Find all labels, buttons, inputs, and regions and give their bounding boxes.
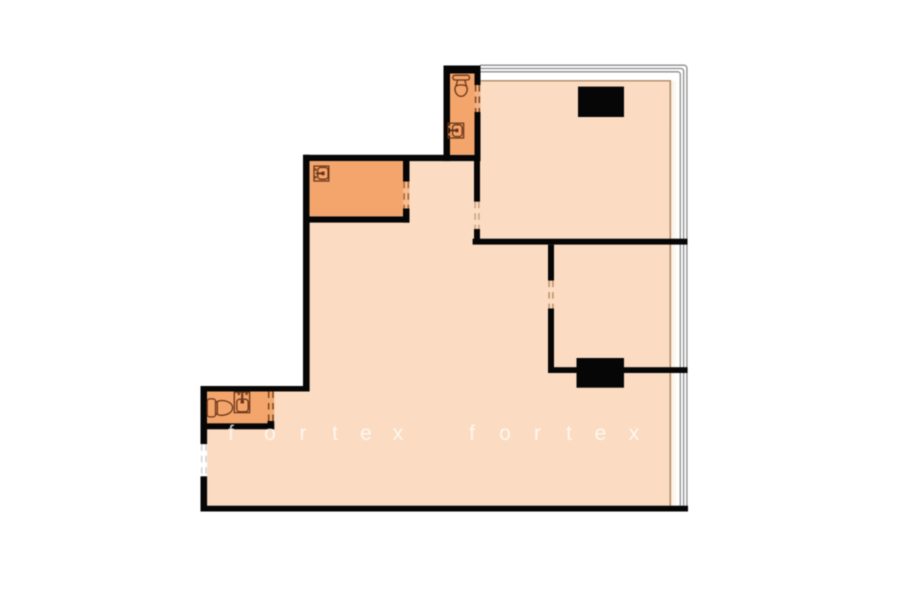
svg-text:t: t xyxy=(566,422,572,445)
svg-text:e: e xyxy=(360,422,372,445)
svg-text:o: o xyxy=(499,422,511,445)
svg-text:x: x xyxy=(393,422,404,445)
svg-text:f: f xyxy=(228,422,234,445)
svg-text:t: t xyxy=(332,422,338,445)
svg-text:e: e xyxy=(595,422,607,445)
svg-text:o: o xyxy=(264,422,276,445)
svg-text:r: r xyxy=(300,422,307,445)
svg-text:x: x xyxy=(629,422,640,445)
svg-text:r: r xyxy=(534,422,541,445)
svg-text:f: f xyxy=(469,422,475,445)
